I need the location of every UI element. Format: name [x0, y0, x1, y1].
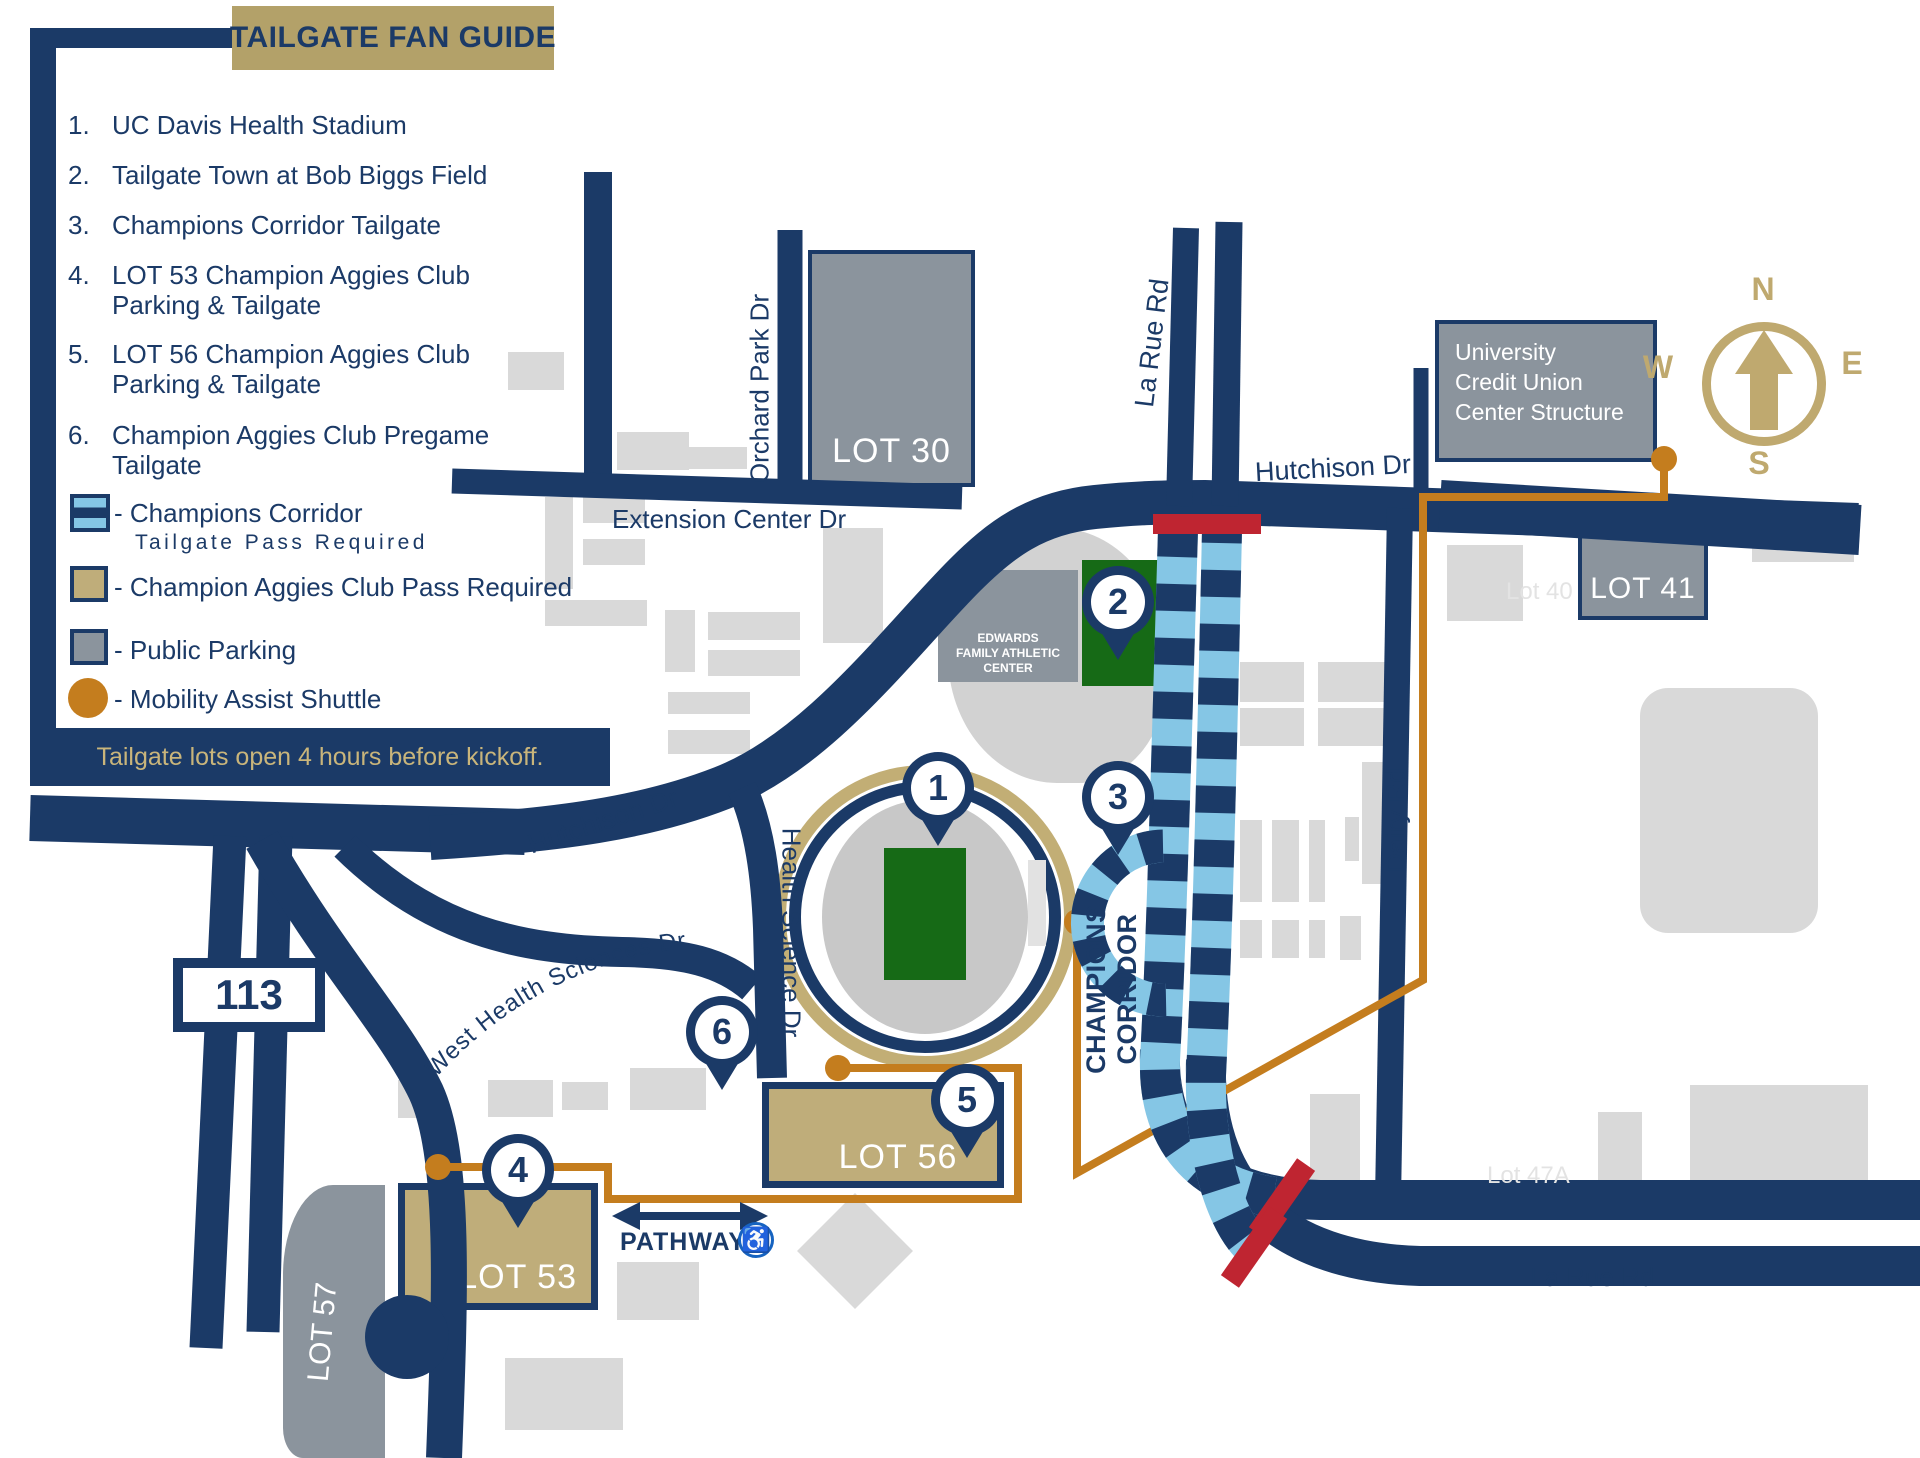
- legend-item-number: 4.: [68, 260, 102, 320]
- legend-item-number: 6.: [68, 420, 102, 480]
- lot-47a-label: Lot 47A: [1487, 1162, 1570, 1190]
- legend-note-band: Tailgate lots open 4 hours before kickof…: [30, 728, 610, 786]
- legend-item-number: 3.: [68, 210, 102, 240]
- legend-item-number: 2.: [68, 160, 102, 190]
- road-la-rue-rd-north-a: [1179, 228, 1186, 506]
- closure-bar-north: [1153, 514, 1261, 534]
- champions-corridor-key-sublabel: Tailgate Pass Required: [135, 531, 428, 555]
- pathway-arrow-shaft: [634, 1212, 746, 1220]
- pathway-label: PATHWAY: [620, 1228, 746, 1257]
- marker-3-number: 3: [1091, 770, 1145, 824]
- compass-south: S: [1741, 446, 1777, 480]
- road-highway-113-sb: [263, 836, 276, 1332]
- legend-title: TAILGATE FAN GUIDE: [232, 6, 554, 70]
- marker-2-tailgate-town: 2: [1082, 566, 1154, 638]
- champions-corridor-line1: CHAMPIONS: [1081, 879, 1112, 1099]
- compass-north: N: [1745, 272, 1781, 306]
- legend-note: Tailgate lots open 4 hours before kickof…: [96, 743, 543, 772]
- marker-4-lot53: 4: [482, 1134, 554, 1206]
- legend-item-5: 5. LOT 56 Champion Aggies Club Parking &…: [68, 339, 523, 399]
- marker-2-number: 2: [1091, 575, 1145, 629]
- legend-item-label: Champions Corridor Tailgate: [112, 210, 441, 240]
- road-extension-center-dr: [452, 481, 962, 497]
- legend-item-label: UC Davis Health Stadium: [112, 110, 407, 140]
- shuttle-key-label: - Mobility Assist Shuttle: [114, 684, 381, 715]
- health-science-dr-label: Health Science Dr: [776, 828, 807, 1038]
- legend-item-2: 2. Tailgate Town at Bob Biggs Field: [68, 160, 568, 190]
- marker-5-number: 5: [940, 1073, 994, 1127]
- legend-item-label: Tailgate Town at Bob Biggs Field: [112, 160, 487, 190]
- compass-arrow-head: [1735, 330, 1793, 374]
- extension-center-dr-label: Extension Center Dr: [612, 504, 846, 535]
- road-highway-113-nb: [206, 836, 230, 1348]
- champions-corridor-line2: CORRIDOR: [1112, 879, 1143, 1099]
- marker-1-number: 1: [911, 761, 965, 815]
- compass-arrow-shaft: [1750, 370, 1778, 430]
- legend-item-1: 1. UC Davis Health Stadium: [68, 110, 568, 140]
- legend-item-4: 4. LOT 53 Champion Aggies Club Parking &…: [68, 260, 523, 320]
- legend-border: [30, 28, 56, 728]
- champions-corridor-key-label: - Champions Corridor: [114, 498, 363, 529]
- road-hutchison-dr-east: [1440, 505, 1860, 530]
- legend-item-number: 1.: [68, 110, 102, 140]
- legend-item-label: LOT 53 Champion Aggies Club Parking & Ta…: [112, 260, 523, 320]
- shuttle-stop-lot53: [425, 1154, 451, 1180]
- shuttle-stop-lot56: [825, 1055, 851, 1081]
- lot-40-label: Lot 40: [1506, 578, 1573, 606]
- champions-corridor-key-icon: [70, 494, 110, 532]
- legend-item-6: 6. Champion Aggies Club Pregame Tailgate: [68, 420, 523, 480]
- road-la-rue-rd-north-b: [1225, 222, 1229, 506]
- legend-item-number: 5.: [68, 339, 102, 399]
- marker-1-stadium: 1: [902, 752, 974, 824]
- marker-6-number: 6: [695, 1005, 749, 1059]
- legend-item-3: 3. Champions Corridor Tailgate: [68, 210, 568, 240]
- compass-west: W: [1640, 350, 1676, 384]
- aggies-club-key-label: - Champion Aggies Club Pass Required: [114, 572, 572, 603]
- tailgate-map: LOT 30 LOT 41 University Credit Union Ce…: [0, 0, 1920, 1458]
- compass-east: E: [1834, 346, 1870, 380]
- highway-113-shield: 113: [173, 958, 325, 1032]
- champions-corridor-label: CHAMPIONS CORRIDOR: [1081, 879, 1143, 1099]
- marker-4-number: 4: [491, 1143, 545, 1197]
- dairy-rd-label: Dairy Rd: [1381, 765, 1412, 877]
- legend-item-label: LOT 56 Champion Aggies Club Parking & Ta…: [112, 339, 523, 399]
- lot-57-notch: [365, 1295, 449, 1379]
- marker-3-champions-corridor: 3: [1082, 761, 1154, 833]
- highway-113-number: 113: [215, 971, 283, 1019]
- shuttle-stop-ucu: [1651, 446, 1677, 472]
- orchard-park-dr-label: Orchard Park Dr: [745, 289, 776, 489]
- accessibility-icon: ♿: [738, 1222, 774, 1258]
- public-parking-key-icon: [70, 629, 108, 665]
- legend-border: [30, 28, 240, 48]
- la-rue-rd-label-south: La Rue Rd: [1530, 1262, 1654, 1293]
- shuttle-key-icon: [68, 678, 108, 718]
- aggies-club-key-icon: [70, 566, 108, 602]
- marker-5-lot56: 5: [931, 1064, 1003, 1136]
- pathway-arrow-left: [612, 1202, 640, 1230]
- public-parking-key-label: - Public Parking: [114, 635, 296, 666]
- marker-6-pregame: 6: [686, 996, 758, 1068]
- legend-item-label: Champion Aggies Club Pregame Tailgate: [112, 420, 523, 480]
